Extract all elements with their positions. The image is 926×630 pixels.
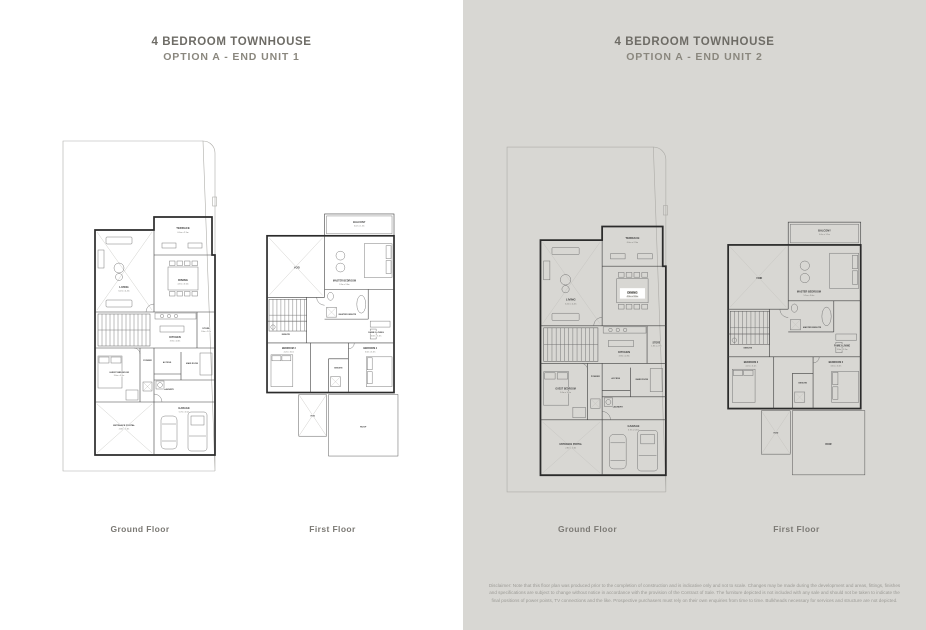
kitchen-dims: 3.9m x 2.8m — [619, 355, 630, 357]
living-dims: 6.2m x 4.4m — [118, 291, 129, 293]
room-bedroom3: BEDROOM 3 4.2m x 3.1m — [271, 348, 296, 387]
ensuite3-label: ENSUITE — [282, 334, 291, 336]
bedroom2-dims: 3.6m x 3.3m — [830, 366, 841, 368]
void-upper: VOID — [269, 238, 323, 296]
ground-floor-plan-svg: LIVING 6.2m x 4.4m TERRACE 6.0m x 2.9m D… — [62, 140, 218, 472]
first-floor-plan-svg: BALCONY 6.0m x 1.5m VOID MASTER B — [726, 218, 867, 479]
terrace-dims: 6.0m x 2.9m — [627, 242, 639, 244]
entrance-portal-label: ENTRANCE PORTAL — [113, 424, 135, 427]
terrace-dims: 6.0m x 2.9m — [177, 232, 188, 234]
unit1-subtitle: OPTION A - END UNIT 1 — [0, 51, 463, 63]
entrance-portal-dims: 2.8m x 2.3m — [565, 447, 576, 449]
bedroom2-label: BEDROOM 2 — [829, 361, 844, 364]
room-entrance-portal: ENTRANCE PORTAL 2.8m x 2.3m — [543, 422, 600, 473]
room-dining: DINING 4.3m x 3.6m — [617, 272, 648, 309]
garage-dims: 5.7m x 5.5m — [628, 430, 639, 432]
room-dining: DINING 4.3m x 3.6m — [168, 261, 198, 296]
bedroom3-dims: 4.2m x 3.1m — [746, 366, 757, 368]
room-ensuite2: ENSUITE — [331, 368, 344, 387]
void-lower: VOID — [299, 395, 327, 437]
room-kitchen: KITCHEN 3.9m x 2.8m — [155, 313, 196, 342]
unit2-first-floor-plan: BALCONY 6.0m x 1.5m VOID MASTER B — [726, 218, 867, 479]
building-walls — [95, 217, 215, 455]
room-powder: POWDER — [591, 376, 601, 408]
first-floor-plan-svg: BALCONY 6.0m x 1.5m VOID MASTER B — [265, 210, 400, 460]
bedroom3-label: BEDROOM 3 — [744, 361, 759, 364]
dining-dims: 4.3m x 3.6m — [627, 296, 639, 298]
room-maid: MAID ROOM — [186, 353, 212, 375]
ensuite2-label: ENSUITE — [798, 383, 807, 385]
kitchen-dims: 3.9m x 2.8m — [170, 340, 181, 342]
store-dims: 1.8m x 2.7m — [651, 346, 662, 348]
room-balcony: BALCONY 6.0m x 1.5m — [325, 214, 394, 236]
staircase — [98, 314, 150, 346]
room-laundry: LAUNDRY — [156, 381, 175, 391]
guest-bedroom-dims: 3.6m x 3.2m — [114, 375, 125, 377]
door-arcs — [780, 309, 819, 363]
master-ensuite-label: MASTER ENSUITE — [339, 313, 357, 316]
unit2-first-floor-label: First Floor — [726, 524, 867, 534]
dining-dims: 4.3m x 3.6m — [177, 284, 188, 286]
access-label: ACCESS — [611, 377, 620, 380]
family-living-label: FAMILY LIVING — [368, 331, 384, 334]
room-balcony: BALCONY 6.0m x 1.5m — [788, 222, 861, 245]
laundry-label: LAUNDRY — [613, 405, 624, 408]
room-garage: GARAGE 5.7m x 5.5m — [161, 406, 207, 451]
room-terrace: TERRACE 6.0m x 2.9m — [610, 236, 652, 259]
master-bedroom-dims: 5.9m x 3.6m — [804, 295, 815, 297]
living-label: LIVING — [566, 298, 576, 302]
suv-icon — [638, 430, 658, 471]
dining-label: DINING — [627, 290, 638, 294]
door-arcs — [317, 297, 355, 349]
bedroom2-label: BEDROOM 2 — [363, 348, 377, 350]
staircase — [269, 299, 307, 331]
unit2-ground-floor-label: Ground Floor — [506, 524, 669, 534]
guest-bedroom-dims: 3.6m x 3.2m — [560, 392, 571, 394]
unit2-title: 4 BEDROOM TOWNHOUSE — [463, 36, 926, 48]
room-laundry: LAUNDRY — [604, 398, 623, 408]
unit1-title: 4 BEDROOM TOWNHOUSE — [0, 36, 463, 48]
roof-label: ROOF — [825, 444, 832, 446]
kitchen-label: KITCHEN — [169, 335, 181, 339]
suv-icon — [188, 412, 207, 451]
room-access: ACCESS — [163, 361, 172, 364]
powder-label: POWDER — [143, 360, 152, 362]
room-kitchen: KITCHEN 3.9m x 2.8m — [603, 327, 646, 358]
room-family-living: FAMILY LIVING 3.8m x 3.3m — [368, 321, 390, 339]
entrance-portal-label: ENTRANCE PORTAL — [560, 443, 583, 446]
maid-room-label: MAID ROOM — [636, 378, 649, 381]
roof-label: ROOF — [360, 426, 367, 428]
car-icon — [609, 434, 626, 468]
master-bedroom-label: MASTER BEDROOM — [797, 291, 821, 294]
unit1-ground-floor-plan: LIVING 6.2m x 4.4m TERRACE 6.0m x 2.9m D… — [62, 140, 218, 472]
room-master-ensuite: MASTER ENSUITE — [790, 304, 831, 330]
room-entrance-portal: ENTRANCE PORTAL 2.8m x 2.3m — [97, 404, 152, 453]
store-label: STORE — [202, 328, 210, 330]
brochure-page: 4 BEDROOM TOWNHOUSE OPTION A - END UNIT … — [0, 0, 926, 630]
room-garage: GARAGE 5.7m x 5.5m — [609, 424, 657, 471]
room-powder: POWDER — [143, 360, 152, 391]
room-master-ensuite: MASTER ENSUITE — [327, 292, 366, 317]
building-walls — [540, 227, 665, 476]
dining-label: DINING — [178, 278, 188, 282]
living-dims: 6.2m x 4.4m — [565, 303, 577, 305]
roof-terrace: ROOF — [329, 395, 398, 457]
room-bedroom2: BEDROOM 2 3.6m x 3.3m — [829, 361, 859, 402]
entrance-portal-dims: 2.8m x 2.3m — [119, 428, 130, 430]
room-master-bedroom: MASTER BEDROOM 5.9m x 3.6m — [797, 253, 859, 297]
room-guest-bedroom: GUEST BEDROOM 3.6m x 3.2m — [544, 372, 586, 418]
bedroom2-dims: 3.6m x 3.3m — [365, 351, 376, 353]
void-lower-label: VOID — [310, 415, 315, 417]
balcony-dims: 6.0m x 1.5m — [354, 225, 365, 227]
room-ensuite2: ENSUITE — [794, 383, 807, 403]
garage-dims: 5.7m x 5.5m — [179, 411, 190, 413]
room-family-living: FAMILY LIVING 3.8m x 3.3m — [834, 334, 857, 353]
unit2-panel: 4 BEDROOM TOWNHOUSE OPTION A - END UNIT … — [463, 0, 926, 630]
garage-label: GARAGE — [628, 424, 640, 428]
master-bedroom-label: MASTER BEDROOM — [333, 279, 356, 282]
room-terrace: TERRACE 6.0m x 2.9m — [162, 226, 202, 248]
master-ensuite-label: MASTER ENSUITE — [803, 326, 822, 329]
bedroom3-dims: 4.2m x 3.1m — [284, 351, 295, 353]
maid-room-label: MAID ROOM — [186, 362, 198, 365]
garage-label: GARAGE — [178, 406, 190, 410]
balcony-dims: 6.0m x 1.5m — [819, 234, 830, 236]
kitchen-label: KITCHEN — [618, 350, 630, 354]
ensuite2-label: ENSUITE — [334, 368, 343, 370]
family-living-dims: 3.8m x 3.3m — [371, 335, 382, 337]
guest-bedroom-label: GUEST BEDROOM — [109, 372, 129, 374]
living-label: LIVING — [119, 285, 128, 289]
room-bedroom3: BEDROOM 3 4.2m x 3.1m — [732, 361, 759, 402]
unit1-ground-floor-label: Ground Floor — [62, 524, 218, 534]
room-maid: MAID ROOM — [636, 369, 663, 392]
room-master-bedroom: MASTER BEDROOM 5.9m x 3.6m — [333, 244, 392, 286]
plot-boundary — [63, 141, 217, 471]
room-bedroom2: BEDROOM 2 3.6m x 3.3m — [363, 348, 392, 387]
guest-bedroom-label: GUEST BEDROOM — [555, 389, 576, 391]
void-upper: VOID — [730, 247, 786, 307]
staircase — [730, 311, 769, 344]
void-lower: VOID — [761, 411, 790, 455]
family-living-label: FAMILY LIVING — [834, 344, 850, 347]
building-walls — [267, 236, 394, 393]
unit1-first-floor-label: First Floor — [265, 524, 400, 534]
unit1-first-floor-plan: BALCONY 6.0m x 1.5m VOID MASTER B — [265, 210, 400, 460]
disclaimer-text: Disclaimer: Note that this floor plan wa… — [485, 582, 904, 605]
family-living-dims: 3.8m x 3.3m — [837, 349, 848, 351]
unit2-ground-floor-plan: LIVING 6.2m x 4.4m TERRACE 6.0m x 2.9m D… — [506, 146, 669, 493]
building-walls — [728, 245, 861, 409]
store-dims: 1.8m x 2.7m — [201, 331, 211, 333]
room-living: LIVING 6.2m x 4.4m — [543, 242, 600, 324]
roof-terrace: ROOF — [792, 411, 865, 475]
room-guest-bedroom: GUEST BEDROOM 3.6m x 3.2m — [98, 356, 138, 400]
powder-label: POWDER — [591, 376, 600, 378]
ensuite3-label: ENSUITE — [744, 348, 753, 350]
room-access: ACCESS — [611, 377, 620, 380]
balcony-label: BALCONY — [353, 221, 366, 224]
terrace-label: TERRACE — [625, 236, 639, 240]
room-living: LIVING 6.2m x 4.4m — [97, 232, 152, 310]
master-bedroom-dims: 5.9m x 3.6m — [339, 284, 350, 286]
staircase — [544, 328, 598, 361]
laundry-label: LAUNDRY — [164, 388, 174, 391]
void-lower-label: VOID — [773, 432, 779, 434]
car-icon — [161, 416, 177, 449]
ground-floor-plan-svg: LIVING 6.2m x 4.4m TERRACE 6.0m x 2.9m D… — [506, 146, 669, 493]
store-label: STORE — [653, 343, 661, 345]
bedroom3-label: BEDROOM 3 — [282, 348, 296, 350]
balcony-label: BALCONY — [818, 228, 831, 232]
plot-boundary — [507, 147, 667, 492]
void-label: VOID — [756, 277, 762, 280]
access-label: ACCESS — [163, 361, 172, 364]
unit2-subtitle: OPTION A - END UNIT 2 — [463, 51, 926, 63]
terrace-label: TERRACE — [176, 226, 190, 230]
unit1-panel: 4 BEDROOM TOWNHOUSE OPTION A - END UNIT … — [0, 0, 463, 630]
void-label: VOID — [294, 267, 300, 270]
